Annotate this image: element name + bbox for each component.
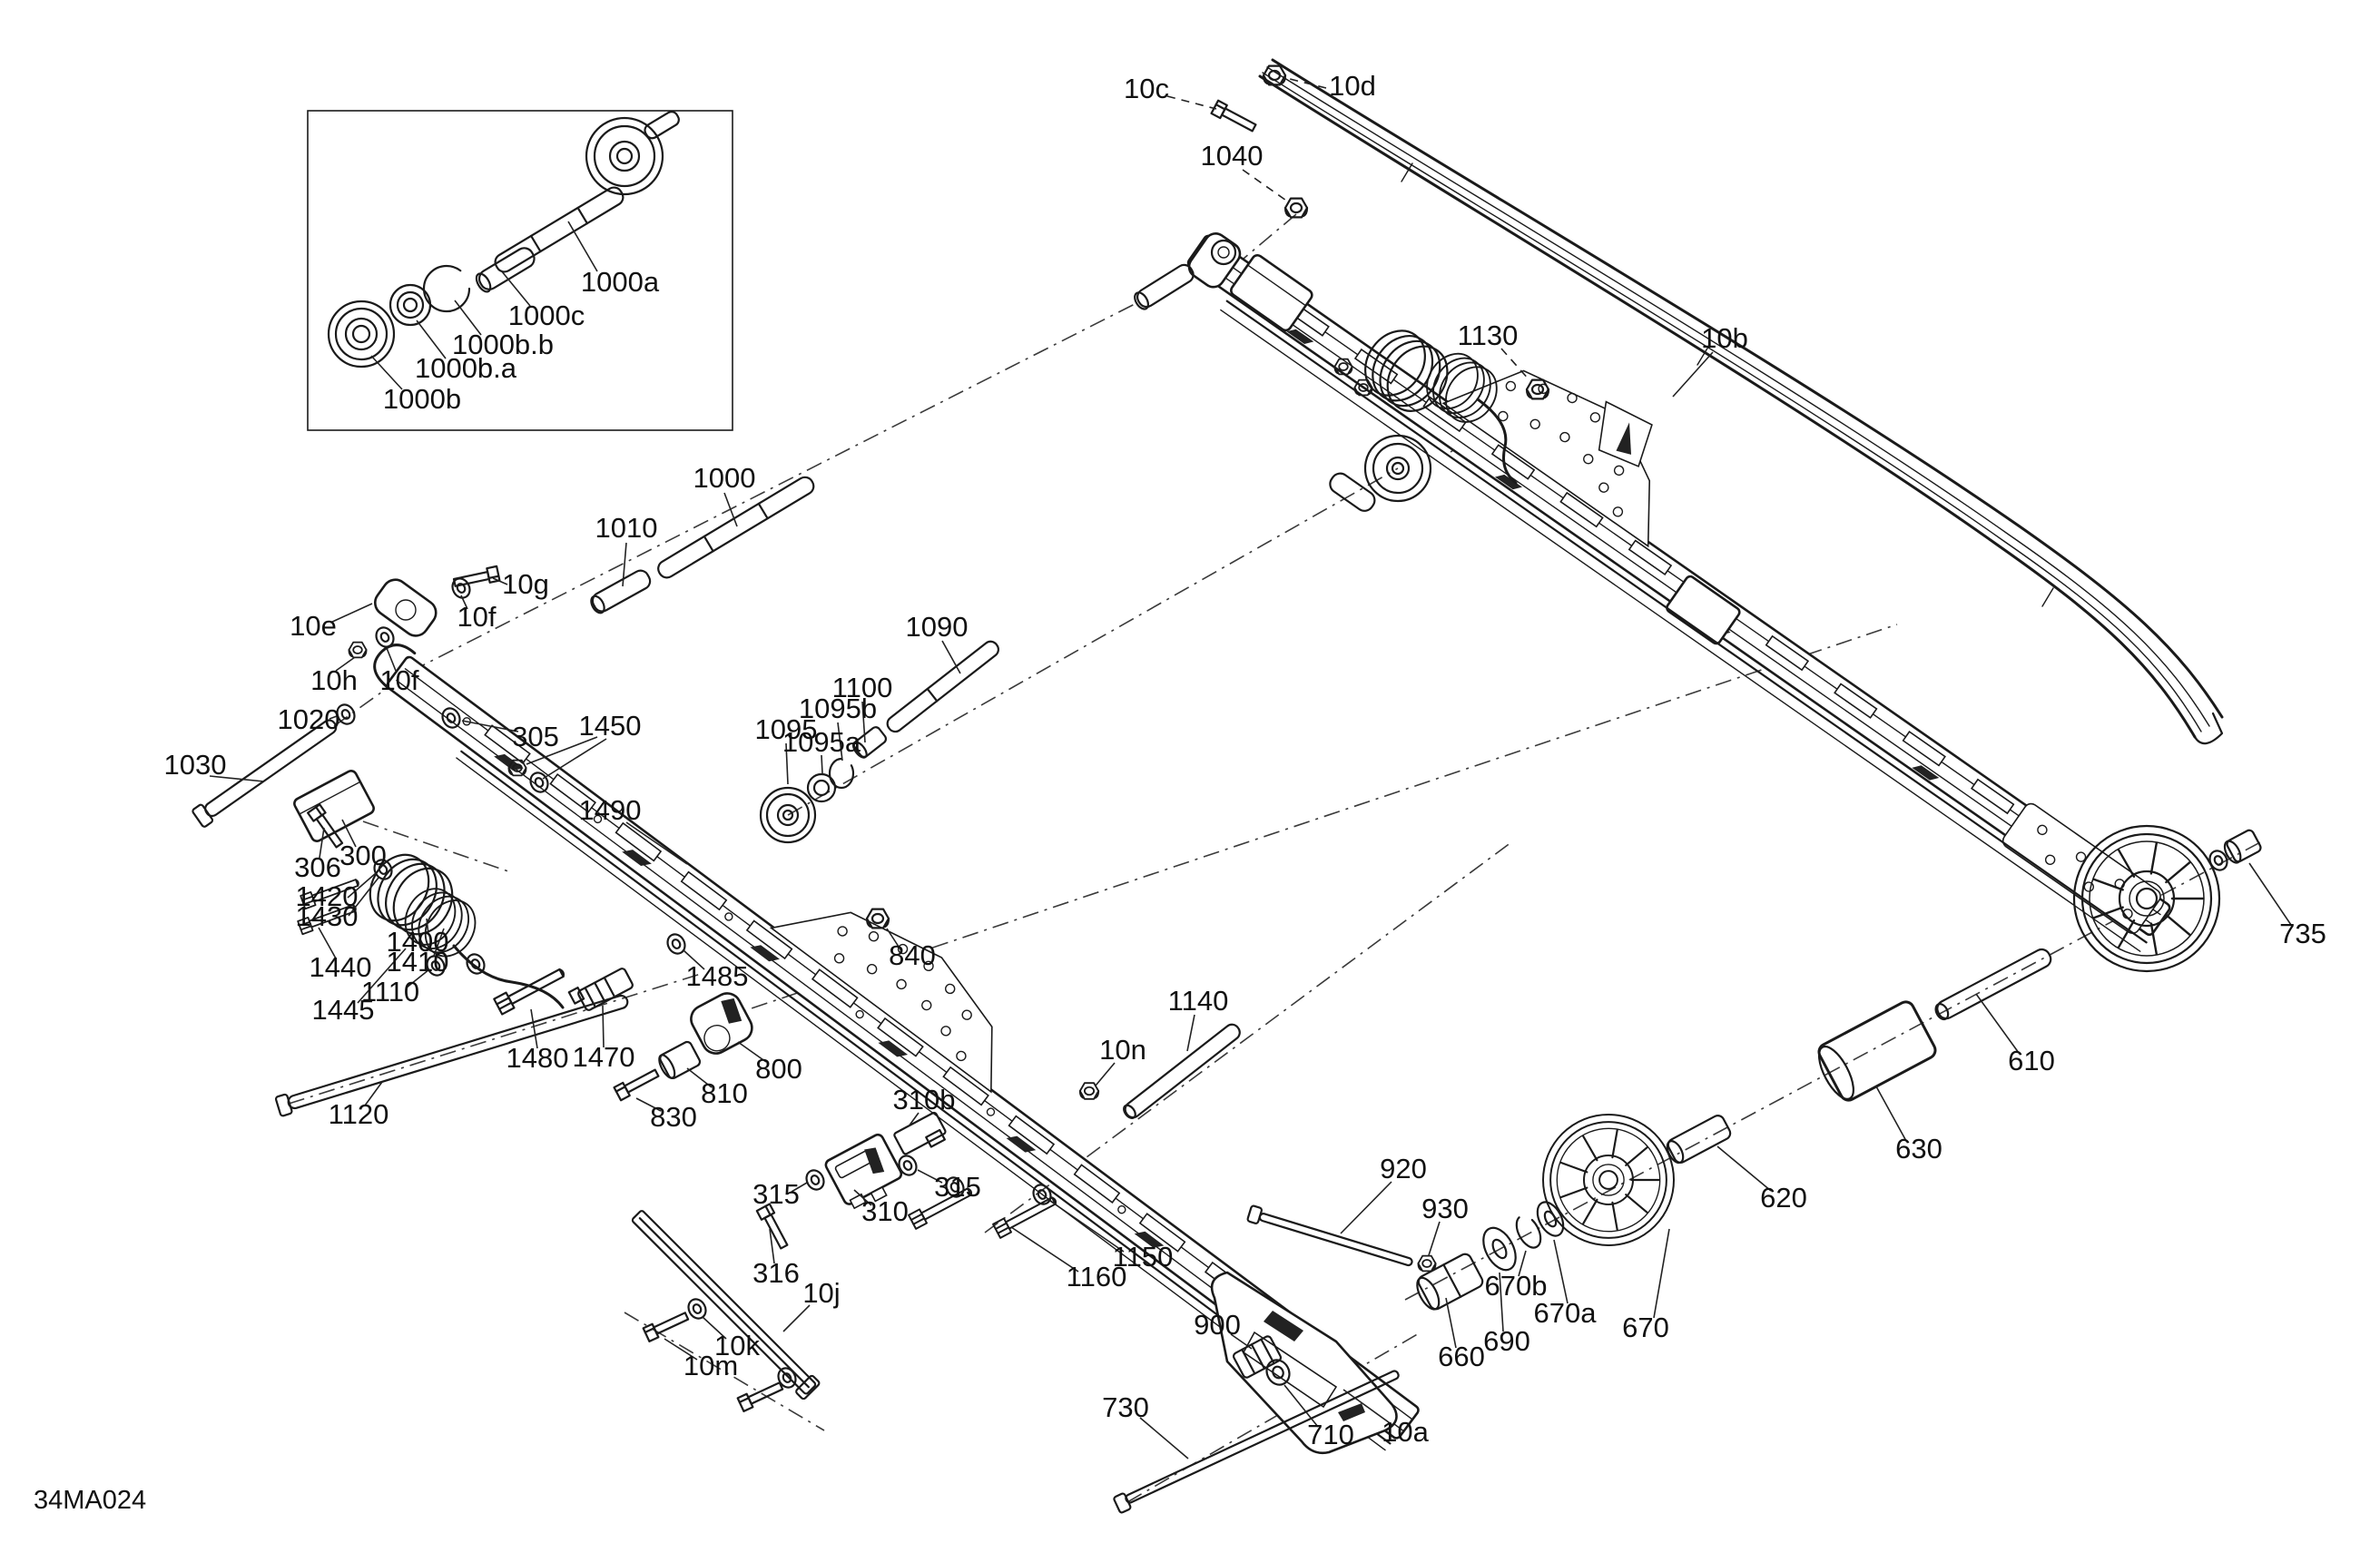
- part-label-840: 840: [889, 939, 936, 971]
- leader-line: [623, 543, 626, 586]
- part-label-315: 315: [752, 1178, 800, 1210]
- leader-line: [942, 641, 960, 673]
- part-label-630: 630: [1895, 1133, 1942, 1165]
- part-label-1000b.a: 1000b.a: [415, 352, 517, 384]
- part-label-1010: 1010: [595, 512, 658, 544]
- leader-line: [1096, 1063, 1115, 1086]
- part-label-1040: 1040: [1201, 140, 1264, 172]
- diagram-page: 1000a1000c1000b.b1000b.a1000b10c10d10401…: [0, 0, 2380, 1543]
- part-label-830: 830: [650, 1101, 697, 1133]
- circlip-1095b-icon: [830, 759, 853, 788]
- leader-line: [1167, 96, 1216, 109]
- part-label-735: 735: [2279, 918, 2326, 949]
- part-label-1490: 1490: [579, 794, 642, 826]
- part-label-930: 930: [1421, 1193, 1469, 1224]
- inset-detail-box: [308, 110, 733, 430]
- part-label-315: 315: [934, 1171, 981, 1203]
- part-label-316: 316: [752, 1257, 800, 1289]
- part-label-1000: 1000: [693, 462, 756, 494]
- part-label-310b: 310b: [893, 1084, 956, 1115]
- part-label-710: 710: [1307, 1419, 1354, 1450]
- upper-arm-assembly: [1132, 153, 2228, 951]
- part-label-10g: 10g: [502, 568, 549, 600]
- leader-line: [1341, 1182, 1392, 1233]
- part-label-10f: 10f: [379, 664, 418, 696]
- bearing-1095a-icon: [808, 774, 835, 801]
- part-label-1000b: 1000b: [383, 383, 461, 415]
- part-label-810: 810: [701, 1077, 748, 1109]
- part-label-1430: 1430: [296, 900, 359, 932]
- part-label-670: 670: [1622, 1312, 1669, 1343]
- part-label-900: 900: [1194, 1309, 1241, 1341]
- part-label-730: 730: [1102, 1391, 1149, 1423]
- part-label-1485: 1485: [686, 960, 749, 992]
- stopper-cluster: [494, 931, 756, 1100]
- part-label-690: 690: [1483, 1325, 1530, 1357]
- part-label-1030: 1030: [164, 749, 227, 781]
- exploded-parts-diagram: 1000a1000c1000b.b1000b.a1000b10c10d10401…: [0, 0, 2380, 1543]
- part-label-660: 660: [1438, 1341, 1485, 1372]
- upper-bearing-icon: [1326, 436, 1431, 515]
- part-label-10f: 10f: [457, 601, 496, 633]
- part-label-1470: 1470: [573, 1041, 635, 1073]
- leader-line: [2249, 863, 2291, 925]
- leader-line: [1140, 1418, 1188, 1459]
- part-label-1130: 1130: [1458, 319, 1519, 351]
- leader-line: [1243, 170, 1289, 202]
- part-label-1000c: 1000c: [508, 300, 585, 331]
- part-label-610: 610: [2008, 1045, 2055, 1076]
- part-label-1410: 1410: [387, 946, 449, 978]
- part-label-10d: 10d: [1329, 70, 1376, 102]
- part-label-10c: 10c: [1124, 73, 1169, 104]
- part-label-1450: 1450: [579, 710, 642, 742]
- leader-line: [1429, 1222, 1440, 1255]
- leader-line: [1187, 1015, 1195, 1051]
- part-label-1090: 1090: [906, 611, 969, 643]
- part-label-1020: 1020: [278, 703, 340, 735]
- part-label-10h: 10h: [310, 664, 358, 696]
- part-label-1480: 1480: [506, 1042, 569, 1074]
- leader-line: [1673, 352, 1713, 397]
- part-label-305: 305: [512, 721, 559, 752]
- part-label-1120: 1120: [329, 1098, 389, 1130]
- part-label-300: 300: [339, 840, 387, 871]
- part-label-10m: 10m: [684, 1350, 738, 1381]
- part-label-800: 800: [755, 1053, 802, 1085]
- part-label-306: 306: [294, 851, 341, 883]
- leader-line: [783, 1305, 810, 1332]
- leader-line: [330, 604, 372, 623]
- part-label-310: 310: [861, 1195, 909, 1227]
- part-label-10n: 10n: [1099, 1034, 1146, 1066]
- part-label-1140: 1140: [1168, 985, 1229, 1017]
- pivot-pin-icon: [1132, 261, 1196, 311]
- part-label-670a: 670a: [1534, 1297, 1598, 1329]
- part-label-1000a: 1000a: [581, 266, 660, 298]
- part-label-10b: 10b: [1701, 322, 1748, 354]
- part-label-920: 920: [1380, 1153, 1427, 1184]
- lower-rail-assembly: [358, 580, 1466, 1453]
- part-label-1160: 1160: [1067, 1261, 1127, 1292]
- part-label-620: 620: [1760, 1182, 1807, 1214]
- part-label-10j: 10j: [802, 1277, 840, 1309]
- part-label-10a: 10a: [1382, 1416, 1429, 1448]
- screw-10c-icon: [1212, 101, 1258, 134]
- drawing-code: 34MA024: [34, 1486, 146, 1515]
- part-label-10e: 10e: [290, 610, 337, 642]
- leader-line: [1554, 1240, 1568, 1303]
- part-label-1095a: 1095a: [782, 726, 861, 758]
- leader-line: [1654, 1229, 1669, 1318]
- part-label-1445: 1445: [312, 994, 375, 1026]
